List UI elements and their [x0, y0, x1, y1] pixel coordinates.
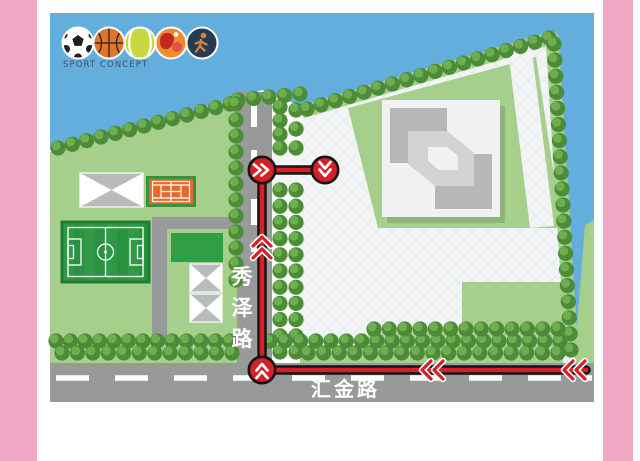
basketball-icon: [93, 27, 125, 59]
pink-border-right: [603, 0, 633, 461]
park-path-vertical: [152, 217, 167, 340]
stadium-building: [382, 100, 505, 223]
route-node-up: [249, 357, 275, 383]
pink-border-left: [0, 0, 37, 461]
athlete-icon: [187, 28, 218, 59]
tennis-ball-icon: [125, 28, 156, 59]
route-node-right: [249, 157, 275, 183]
small-pavilion: [190, 264, 222, 292]
route-node-down: [312, 157, 338, 183]
tennis-court: [146, 176, 196, 207]
sport-concept-site-plan: 秀泽路 汇金路: [0, 0, 640, 461]
soccer-field: [62, 222, 149, 282]
legend-caption: SPORT CONCEPT: [63, 60, 148, 70]
pavilion-building: [80, 173, 143, 207]
site-plan-map: 秀泽路 汇金路: [0, 0, 640, 461]
green-pitch: [171, 233, 223, 262]
vertical-road-label: 秀泽路: [231, 265, 254, 351]
horizontal-road-label: 汇金路: [311, 377, 380, 401]
small-pavilion: [190, 294, 222, 322]
table-tennis-icon: [156, 28, 187, 59]
